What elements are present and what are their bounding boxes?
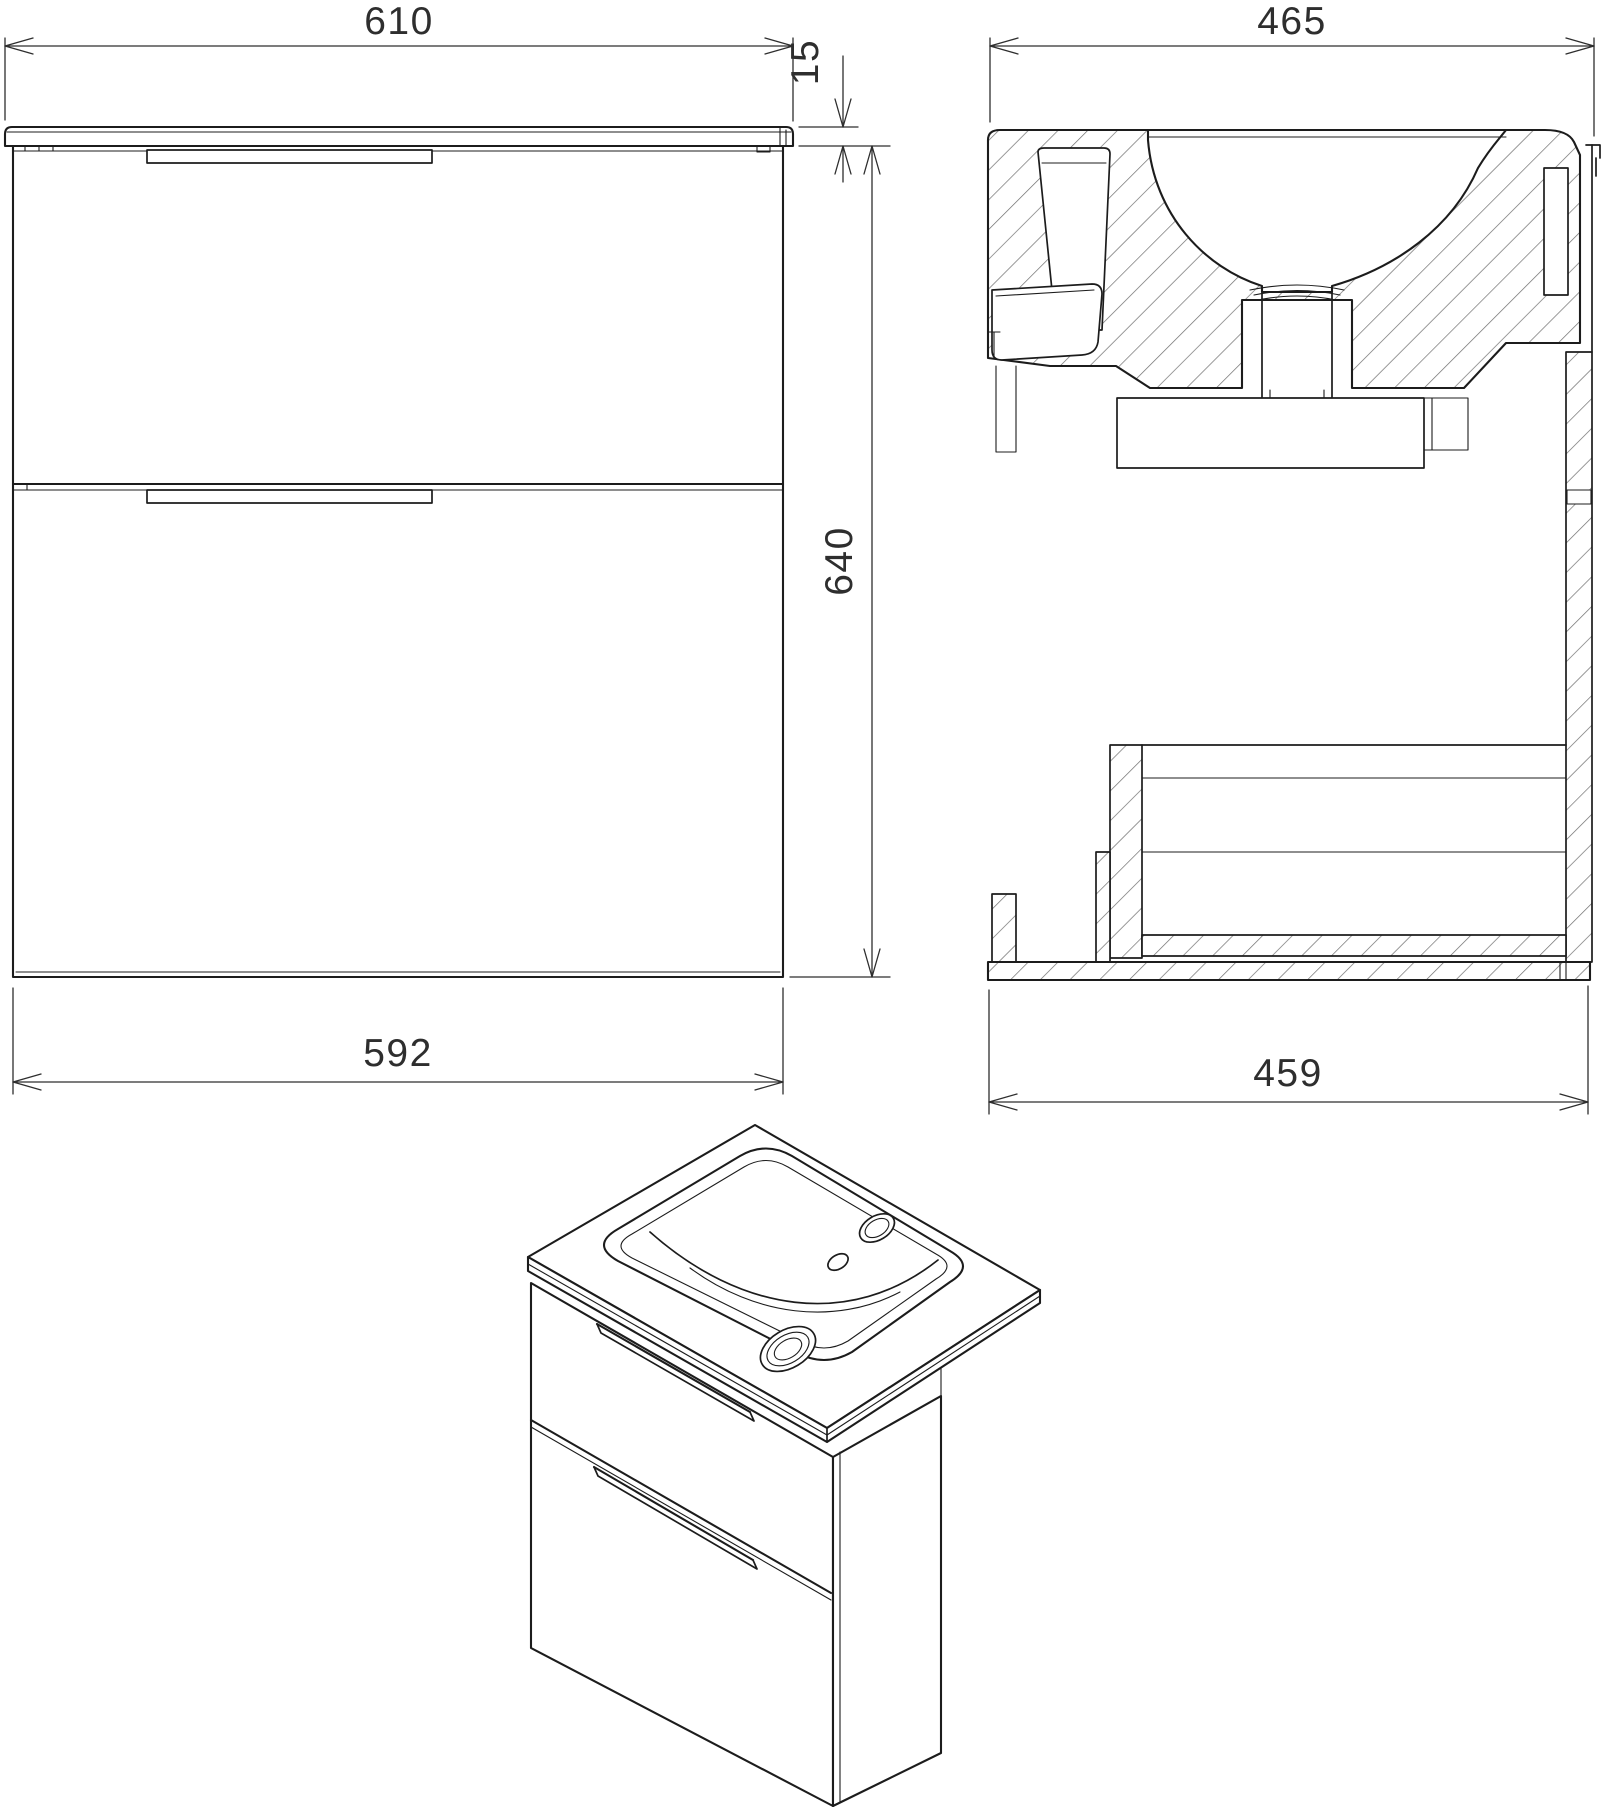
drawing-sheet: 610 15 640 592 [0,0,1603,1807]
isometric-view [528,1125,1040,1806]
side-back-panel [1566,352,1592,962]
side-front-rail [992,894,1016,962]
front-drawer1-handle [147,150,432,163]
dimension-459: 459 [989,986,1588,1114]
dim-text-body-depth: 459 [1253,1052,1323,1095]
dim-text-body-height: 640 [818,526,861,596]
front-drawer2-handle [147,490,432,503]
side-section-view: 465 459 [988,0,1600,1114]
side-wall-hook [1586,145,1600,176]
dimension-465: 465 [990,0,1594,136]
dim-text-countertop-thickness: 15 [784,39,827,85]
dimension-592: 592 [13,988,783,1094]
dim-text-body-width: 592 [363,1032,433,1075]
side-lower-drawer-bottom [1142,935,1566,956]
side-wall-bracket [1544,168,1568,295]
dimension-15: 15 [784,39,890,182]
iso-cabinet-side-face [833,1396,941,1806]
side-drain-channel [1262,292,1332,398]
dimension-610: 610 [5,0,793,121]
side-lower-drawer-front [1110,745,1142,958]
dim-text-countertop-depth: 465 [1257,0,1327,43]
side-underbasin-box [1117,398,1424,468]
dim-text-countertop-width: 610 [364,0,434,43]
dimension-640: 640 [790,146,890,977]
front-view: 610 15 640 592 [5,0,890,1094]
front-cabinet-body [13,146,783,977]
front-countertop [5,127,793,146]
side-bottom-panel [988,962,1590,980]
technical-drawing-canvas: 610 15 640 592 [0,0,1603,1807]
